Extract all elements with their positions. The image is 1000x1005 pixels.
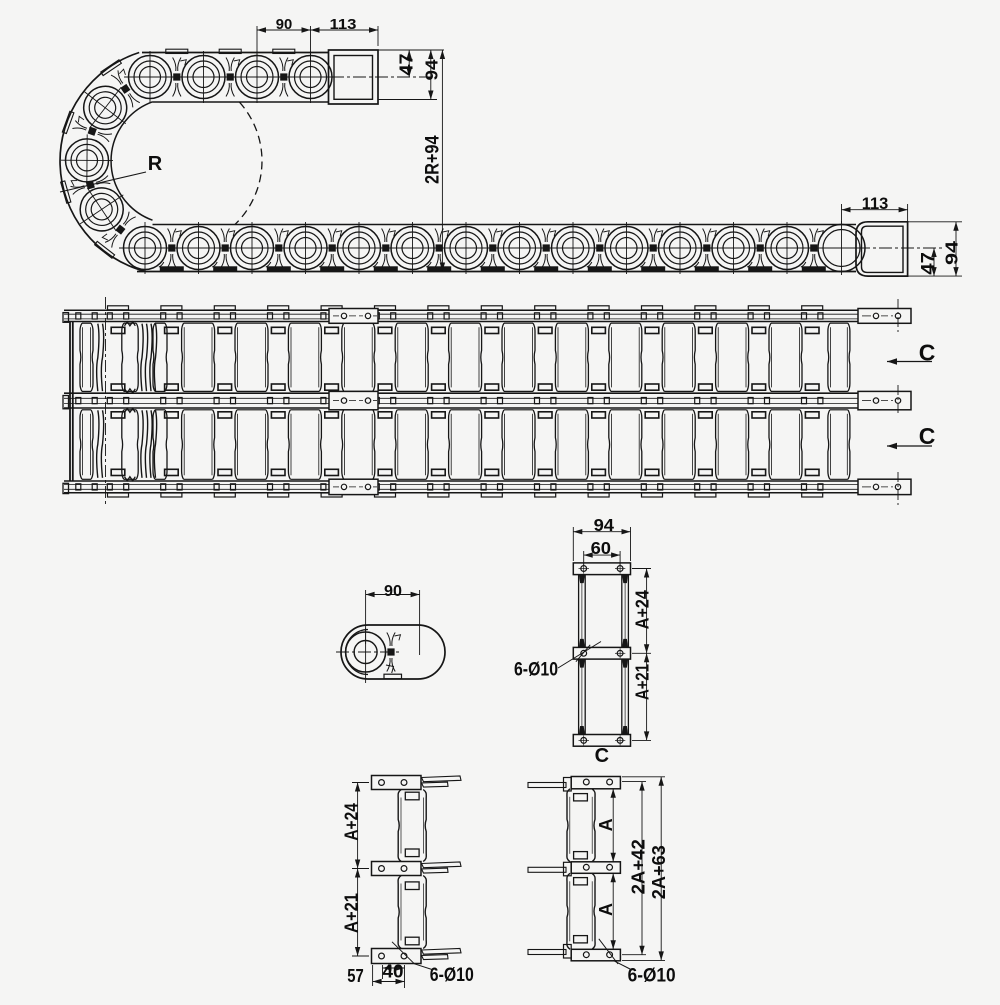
svg-text:2R+94: 2R+94	[423, 135, 444, 184]
svg-text:A+24: A+24	[632, 590, 652, 629]
svg-text:113: 113	[862, 194, 889, 213]
svg-text:94: 94	[942, 241, 962, 265]
svg-text:A: A	[596, 818, 616, 831]
svg-text:113: 113	[330, 17, 357, 33]
svg-text:47: 47	[395, 54, 416, 76]
svg-text:6-Ø10: 6-Ø10	[514, 660, 558, 681]
svg-text:C: C	[919, 340, 936, 366]
svg-text:A: A	[596, 903, 616, 916]
svg-text:A+21: A+21	[342, 893, 362, 933]
svg-text:2A+63: 2A+63	[649, 845, 669, 899]
svg-text:C: C	[919, 423, 936, 449]
svg-text:60: 60	[591, 538, 612, 558]
svg-text:94: 94	[422, 59, 442, 80]
svg-text:6-Ø10: 6-Ø10	[628, 965, 676, 986]
svg-text:57: 57	[347, 966, 364, 986]
svg-text:A+24: A+24	[342, 803, 362, 841]
svg-text:90: 90	[384, 583, 402, 600]
svg-text:2A+42: 2A+42	[629, 839, 649, 894]
svg-text:A+21: A+21	[632, 664, 652, 700]
svg-text:6-Ø10: 6-Ø10	[430, 965, 474, 986]
svg-text:90: 90	[276, 17, 293, 33]
svg-text:47: 47	[917, 252, 938, 274]
svg-text:C: C	[595, 745, 609, 767]
svg-text:94: 94	[594, 515, 615, 535]
svg-text:R: R	[148, 153, 163, 175]
svg-text:40: 40	[383, 962, 404, 982]
